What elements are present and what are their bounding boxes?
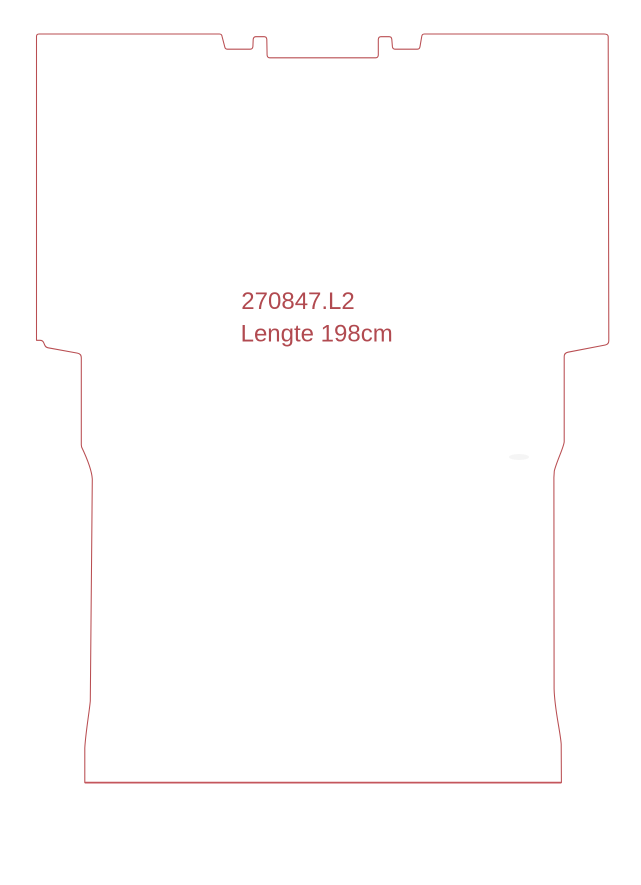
svg-text:Lengte 198cm: Lengte 198cm [241, 320, 393, 347]
svg-text:270847.L2: 270847.L2 [241, 288, 354, 315]
